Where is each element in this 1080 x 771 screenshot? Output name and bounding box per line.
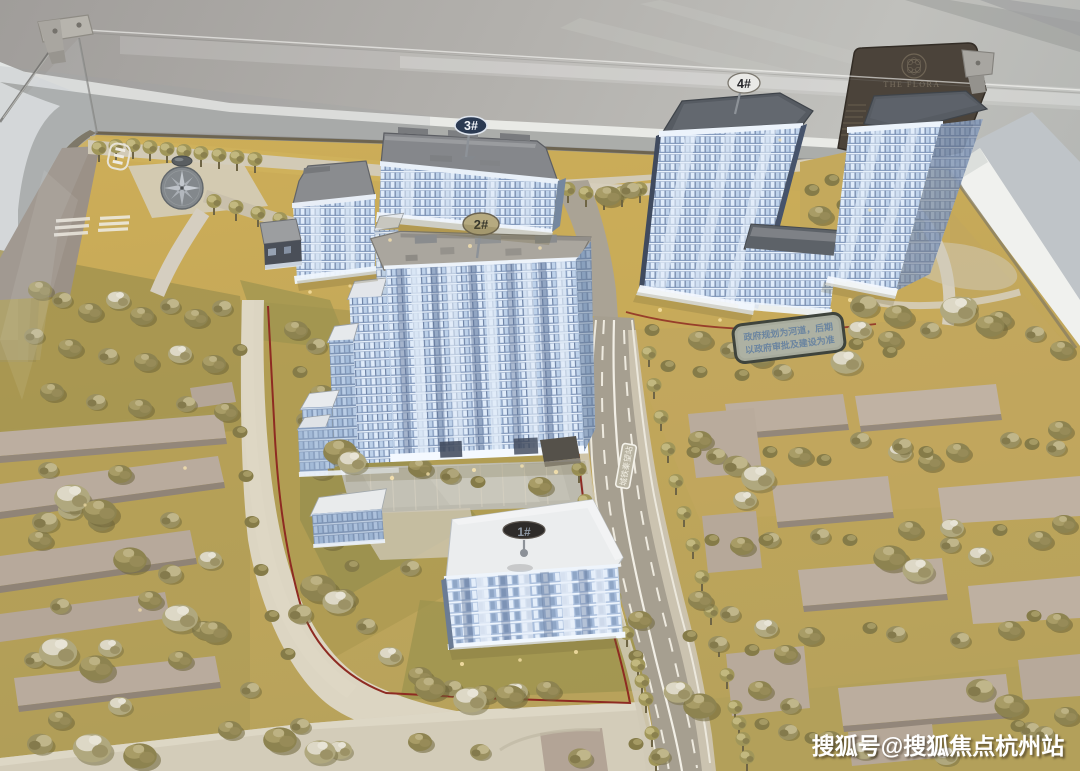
svg-text:4#: 4# <box>737 77 751 91</box>
svg-text:3#: 3# <box>464 119 478 133</box>
svg-text:搜狐号@搜狐焦点杭州站: 搜狐号@搜狐焦点杭州站 <box>812 733 1064 759</box>
svg-text:1#: 1# <box>517 525 531 539</box>
